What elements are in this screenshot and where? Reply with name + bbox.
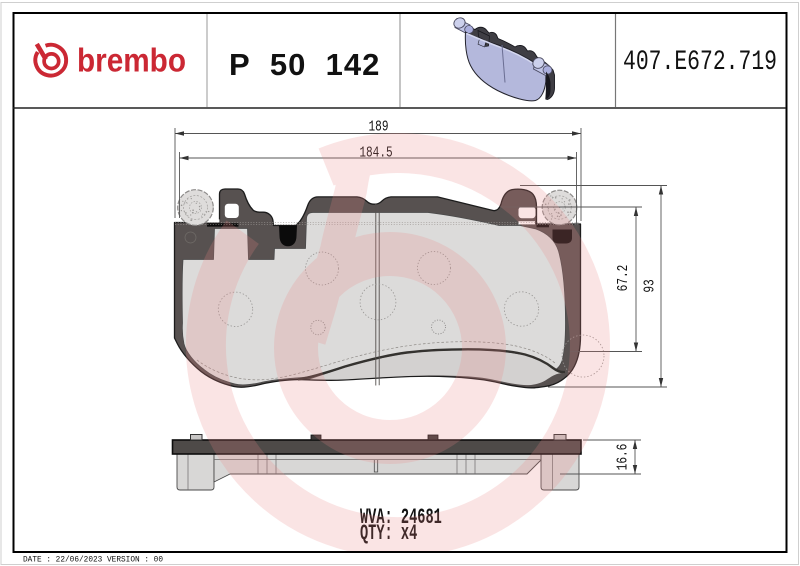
svg-text:407.E672.719: 407.E672.719 <box>623 47 777 78</box>
svg-text:189: 189 <box>369 118 389 135</box>
svg-text:67.2: 67.2 <box>614 265 631 292</box>
svg-text:16.6: 16.6 <box>614 444 631 471</box>
svg-text:P 50 142: P 50 142 <box>229 47 380 82</box>
svg-text:DATE : 22/06/2023 VERSION : 00: DATE : 22/06/2023 VERSION : 00 <box>23 555 163 565</box>
svg-text:brembo: brembo <box>77 42 186 79</box>
svg-text:93: 93 <box>641 279 658 292</box>
